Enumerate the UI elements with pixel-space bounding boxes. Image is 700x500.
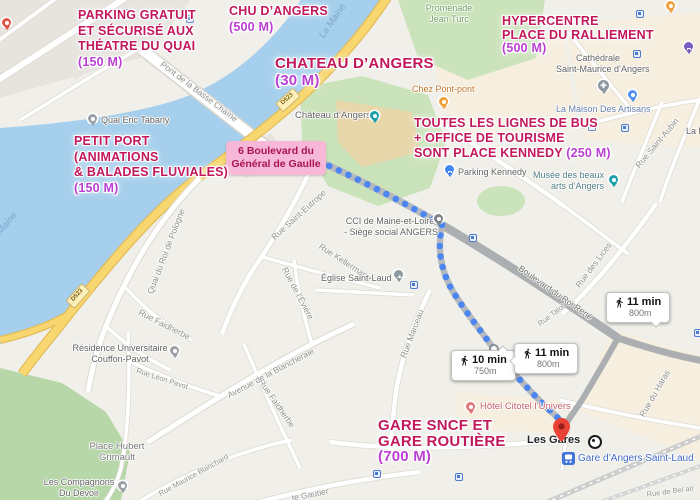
poi-label-gare-saint-laud[interactable]: Gare d’Angers Saint-Laud	[578, 454, 694, 465]
poi-label-cathedrale[interactable]: Cathédrale Saint-Maurice d’Angers	[556, 53, 640, 74]
museum-pin-icon[interactable]	[609, 175, 618, 184]
poi-label-promenade[interactable]: Promenade Jean Turc	[418, 3, 480, 24]
castle-pin-icon[interactable]	[370, 111, 379, 120]
poi-label-place-hubert: Place Hubert Grimault	[88, 442, 146, 463]
poi-label-eglise[interactable]: Église Saint-Laud	[321, 273, 392, 284]
walking-icon	[614, 297, 625, 308]
badge-time: 11 min	[627, 296, 661, 308]
poi-label-quai-tabarly[interactable]: Quai Eric Tabarly	[101, 115, 169, 126]
poi-label-hotel[interactable]: Hôtel Citotel l’Univers	[480, 402, 571, 413]
poi-label-parking-kennedy[interactable]: Parking Kennedy	[458, 167, 527, 178]
poi-label-musee[interactable]: Musée des beaux arts d’Angers	[530, 170, 604, 191]
office-pin-icon[interactable]	[434, 214, 443, 223]
annotation-bus-office: TOUTES LES LIGNES DE BUS + OFFICE DE TOU…	[414, 116, 611, 161]
poi-label-chateau[interactable]: Château d’Angers	[295, 111, 371, 122]
annotation-parking-quai: PARKING GRATUIT ET SÉCURISÉ AUX THÉATRE …	[78, 8, 196, 70]
address-line: 6 Boulevard du	[228, 145, 324, 158]
shop-pin-icon[interactable]	[628, 90, 637, 99]
annotation-chateau: CHATEAU D’ANGERS (30 M)	[275, 55, 434, 89]
transit-stop-icon[interactable]	[588, 435, 602, 449]
poi-pin-icon[interactable]	[666, 1, 675, 10]
badge-distance: 800m	[537, 359, 569, 369]
address-callout-box: 6 Boulevard du Général de Gaulle	[226, 141, 326, 175]
restaurant-pin-icon[interactable]	[439, 97, 448, 106]
annotation-chu: CHU D’ANGERS (500 M)	[229, 4, 328, 35]
train-station-icon[interactable]	[562, 452, 575, 470]
poi-pin-icon[interactable]	[88, 114, 97, 123]
bus-stop-icon[interactable]	[373, 470, 381, 478]
poi-label-compagnons[interactable]: Les Compagnons Du Devoir	[42, 477, 116, 498]
poi-label-la-pr: La Pr	[686, 126, 700, 137]
walk-badge-11min-mid[interactable]: 11 min 800m	[514, 343, 578, 374]
destination-pin-icon[interactable]	[553, 418, 570, 447]
poi-label-residence[interactable]: Résidence Universitaire Couffon-Pavot	[70, 343, 170, 364]
address-line: Général de Gaulle	[228, 158, 324, 171]
walking-icon	[522, 348, 533, 359]
walking-icon	[459, 355, 470, 366]
poi-label-maison-artisans[interactable]: La Maison Des Artisans	[556, 104, 651, 115]
bus-stop-icon[interactable]	[469, 234, 477, 242]
poi-pin-icon[interactable]	[2, 18, 11, 27]
bus-stop-icon[interactable]	[694, 329, 700, 337]
bus-stop-icon[interactable]	[455, 473, 463, 481]
annotation-gare: GARE SNCF ET GARE ROUTIÈRE (700 M)	[378, 418, 506, 465]
annotation-petit-port: PETIT PORT (ANIMATIONS & BALADES FLUVIAL…	[74, 134, 228, 196]
poi-pin-icon[interactable]	[170, 346, 179, 355]
hotel-pin-icon[interactable]	[466, 402, 475, 411]
badge-distance: 750m	[474, 366, 507, 376]
poi-label-cci[interactable]: CCI de Maine-et-Loire - Siège social ANG…	[344, 216, 436, 237]
poi-pin-icon[interactable]	[118, 481, 127, 490]
church-pin-icon[interactable]	[394, 270, 403, 279]
badge-time: 11 min	[535, 347, 569, 359]
annotation-hypercentre: HYPERCENTRE PLACE DU RALLIEMENT (500 M)	[502, 15, 654, 56]
bus-stop-icon[interactable]	[410, 281, 418, 289]
bus-stop-icon[interactable]	[621, 124, 629, 132]
walk-badge-11min-right[interactable]: 11 min 800m	[606, 292, 670, 323]
map-viewport[interactable]: La Maine La Maine Pont de la Basse Chaîn…	[0, 0, 700, 500]
parking-pin-icon[interactable]	[445, 165, 454, 174]
church-pin-icon[interactable]	[598, 80, 609, 91]
walk-badge-10min[interactable]: 10 min 750m	[451, 350, 516, 381]
parking-pin-icon[interactable]	[684, 42, 693, 51]
